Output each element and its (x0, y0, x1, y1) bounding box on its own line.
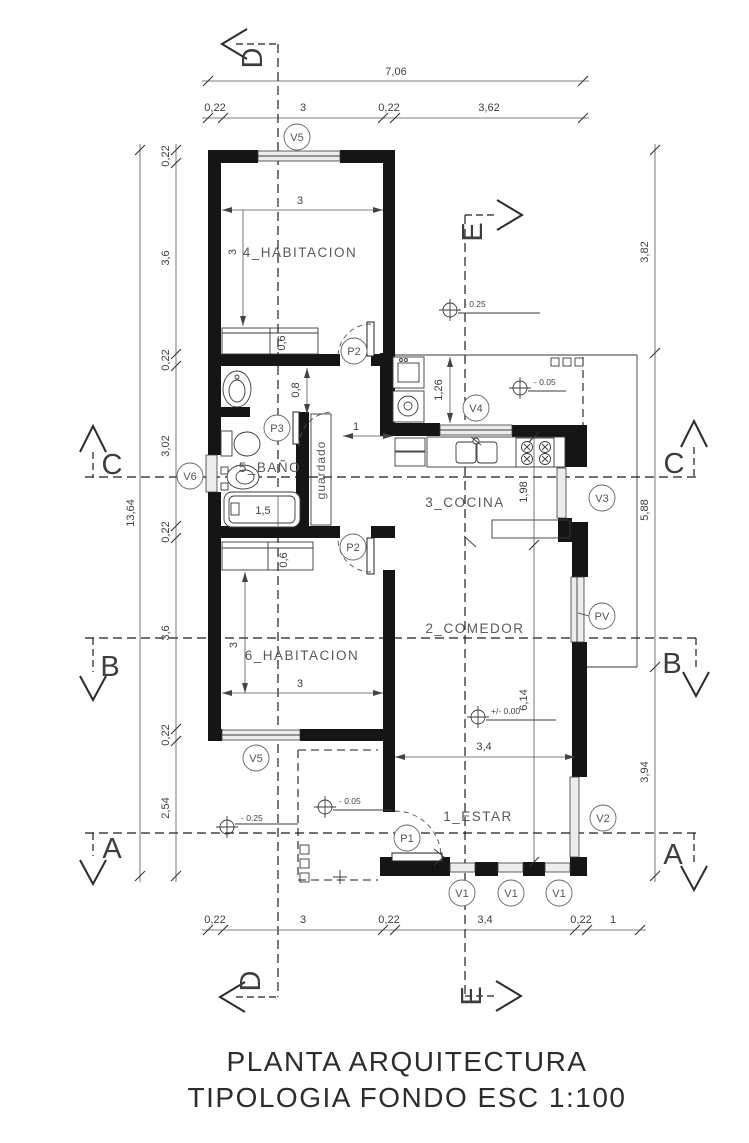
kitchen-counter (395, 437, 565, 467)
entry-porch (298, 750, 378, 884)
porch-cross-mark (333, 870, 347, 884)
dim-right-2: 3,94 (639, 761, 651, 782)
dim-kitchen: 1,98 (518, 481, 530, 502)
dim-hab4-width: 3 (297, 195, 303, 207)
laundry-sink (393, 357, 424, 388)
dim-left-1: 3,6 (160, 250, 172, 265)
title-block: PLANTA ARQUITECTURA TIPOLOGIA FONDO ESC … (188, 1046, 627, 1113)
dim-bottom-5: 1 (610, 914, 616, 926)
svg-text:V5: V5 (290, 132, 303, 144)
dim-left-5: 3,6 (160, 625, 172, 640)
window-v6 (206, 455, 217, 492)
dim-hab4-height: 3 (227, 249, 239, 255)
svg-text:P1: P1 (400, 833, 413, 845)
room-label-comedor: 2_COMEDOR (425, 621, 524, 636)
window-v1-c (545, 863, 570, 872)
dim-right-0: 3,82 (639, 241, 651, 262)
tag-v4: V4 (463, 395, 489, 421)
dim-hab6-width: 3 (297, 678, 303, 690)
tag-v6: V6 (177, 463, 203, 489)
svg-text:C: C (102, 449, 123, 481)
level-marker-galeria: - 0.05 (509, 377, 566, 399)
svg-text:V3: V3 (595, 493, 608, 505)
dim-closet6: 0,6 (278, 552, 290, 567)
tag-v5-bottom: V5 (243, 745, 269, 771)
room-label-hab4: 4_HABITACION (243, 245, 358, 260)
dim-bottom-2: 0,22 (378, 914, 399, 926)
window-v3 (557, 468, 566, 518)
tag-v3: V3 (589, 485, 615, 511)
level-marker-garden: - 0.25 (216, 813, 298, 838)
dim-top-2: 0,22 (378, 102, 399, 114)
dim-left-2: 0,22 (160, 349, 172, 370)
svg-text:- 0.05: - 0.05 (534, 377, 556, 387)
dim-top-total: 7,06 (385, 66, 406, 78)
svg-text:V6: V6 (183, 471, 196, 483)
svg-text:D: D (237, 48, 269, 69)
svg-text:E: E (457, 222, 489, 241)
tag-v1-a: V1 (449, 880, 475, 906)
window-pv (571, 577, 584, 642)
dim-left-0: 0,22 (160, 145, 172, 166)
dim-bottom-4: 0,22 (570, 914, 591, 926)
porch-post (300, 859, 309, 868)
svg-text:D: D (235, 971, 267, 992)
svg-text:V1: V1 (455, 888, 468, 900)
closet-hab4 (222, 328, 318, 354)
dim-closet4: 0,6 (276, 335, 288, 350)
dim-bottom-0: 0,22 (204, 914, 225, 926)
laundry-fixtures (393, 357, 424, 422)
section-marker-b-left: B (80, 638, 120, 700)
room-label-hab6: 6_HABITACION (245, 648, 360, 663)
svg-text:B: B (100, 651, 119, 683)
svg-text:C: C (664, 448, 685, 480)
dim-left-7: 2,54 (160, 797, 172, 818)
svg-text:P3: P3 (270, 423, 283, 435)
dim-left-3: 3,02 (160, 435, 172, 456)
tag-v2: V2 (590, 805, 616, 831)
room-label-guardado: guardado (314, 441, 328, 500)
dim-left-total: 13,64 (125, 499, 137, 527)
window-v1-b (498, 863, 523, 872)
washing-machine (393, 391, 424, 422)
svg-text:V2: V2 (596, 813, 609, 825)
meter-box (575, 358, 583, 366)
level-marker-porch: - 0.05 (314, 796, 392, 818)
title-line-2: TIPOLOGIA FONDO ESC 1:100 (188, 1082, 627, 1113)
svg-text:- 0.05: - 0.05 (339, 796, 361, 806)
dim-laundry: 1,26 (433, 379, 445, 400)
svg-text:+/- 0.00: +/- 0.00 (491, 706, 520, 716)
window-v2 (570, 777, 579, 857)
dim-top-1: 3 (300, 102, 306, 114)
tag-v1-b: V1 (498, 880, 524, 906)
floor-plan-drawing: 7,06 0,22 3 0,22 3,62 0,22 3 0,22 3,4 0,… (0, 0, 749, 1143)
svg-text:A: A (663, 839, 683, 871)
tag-p3: P3 (264, 415, 290, 441)
svg-text:V1: V1 (504, 888, 517, 900)
section-marker-d-bottom: D (220, 971, 278, 1012)
dim-hall: 1 (353, 421, 359, 433)
meter-box (563, 358, 571, 366)
section-marker-c-left: C (80, 426, 122, 481)
sink-fixture (223, 371, 251, 407)
section-marker-a-right: A (663, 833, 707, 890)
section-marker-d-top: D (222, 29, 278, 68)
dim-bottom-3: 3,4 (477, 914, 492, 926)
title-line-1: PLANTA ARQUITECTURA (227, 1046, 588, 1077)
room-label-cocina: 3_COCINA (425, 495, 505, 510)
dim-tub: 1,5 (255, 505, 270, 517)
window-v1-a (450, 863, 475, 872)
dim-top-3: 3,62 (478, 102, 499, 114)
svg-text:P2: P2 (346, 542, 359, 554)
bathroom-fixtures (221, 371, 300, 527)
tag-v5-top: V5 (284, 124, 310, 150)
svg-text:PV: PV (595, 611, 610, 623)
svg-text:A: A (102, 833, 122, 865)
svg-text:B: B (662, 648, 681, 680)
dim-bottom-1: 3 (300, 914, 306, 926)
room-label-bano: 5_BAÑO (239, 460, 301, 475)
room-label-estar: 1_ESTAR (443, 809, 513, 824)
svg-text:V4: V4 (469, 403, 482, 415)
level-marker-estar: +/- 0.00 (467, 706, 556, 728)
section-marker-a-left: A (80, 833, 122, 884)
tag-p2-upper: P2 (341, 338, 367, 364)
svg-text:- 0.25: - 0.25 (464, 299, 486, 309)
dim-hab6-height: 3 (228, 642, 240, 648)
dim-left-4: 0,22 (160, 521, 172, 542)
closet-hab6 (222, 542, 313, 570)
porch-post (300, 873, 309, 882)
svg-text:V5: V5 (249, 753, 262, 765)
dim-pass: 0,8 (290, 382, 302, 397)
dim-left-6: 0,22 (160, 724, 172, 745)
svg-text:V1: V1 (552, 888, 565, 900)
toilet-fixture (221, 431, 260, 456)
section-marker-e-bottom: E (456, 981, 521, 1011)
dim-right-1: 5,88 (639, 499, 651, 520)
tag-v1-c: V1 (546, 880, 572, 906)
level-marker-patio: - 0.25 (439, 299, 540, 321)
tag-p2-lower: P2 (340, 534, 366, 560)
tag-p1: P1 (394, 825, 420, 851)
porch-post (300, 845, 309, 854)
svg-text:- 0.25: - 0.25 (241, 813, 263, 823)
section-marker-b-right: B (662, 638, 709, 696)
meter-box (551, 358, 559, 366)
stove (516, 438, 554, 467)
section-marker-c-right: C (664, 421, 707, 480)
sideboard (464, 520, 570, 547)
dim-top-0: 0,22 (204, 102, 225, 114)
section-marker-e-top: E (457, 200, 522, 242)
svg-text:E: E (456, 986, 488, 1005)
svg-text:P2: P2 (347, 346, 360, 358)
dim-estar-w: 3,4 (476, 741, 491, 753)
floor-plan-page: 7,06 0,22 3 0,22 3,62 0,22 3 0,22 3,4 0,… (0, 0, 749, 1143)
